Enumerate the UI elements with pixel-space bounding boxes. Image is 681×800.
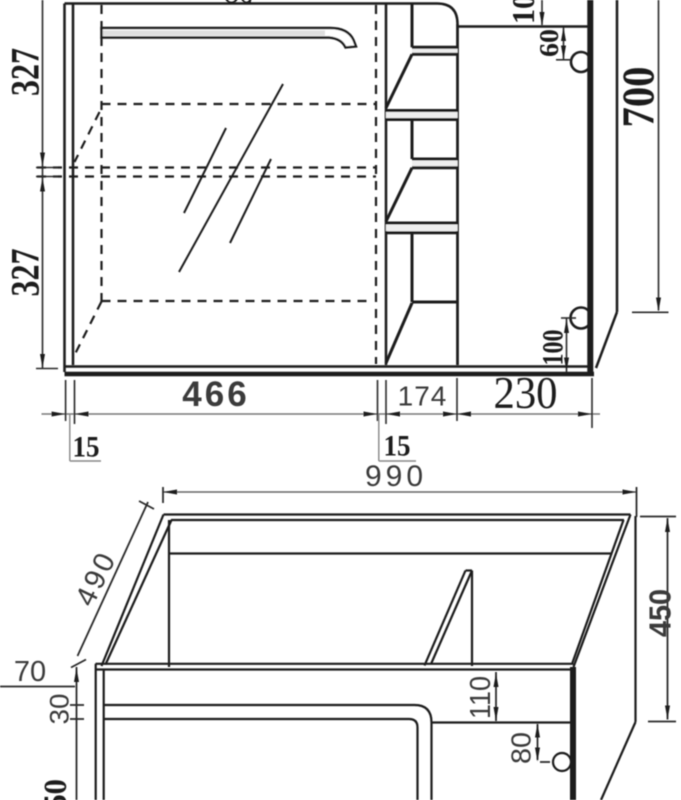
svg-text:70: 70 — [14, 656, 46, 688]
svg-text:60: 60 — [534, 29, 564, 57]
svg-text:450: 450 — [643, 589, 678, 637]
svg-text:990: 990 — [365, 460, 427, 493]
svg-text:327: 327 — [3, 48, 48, 96]
svg-text:150: 150 — [38, 779, 74, 800]
svg-text:100: 100 — [537, 330, 570, 366]
svg-text:110: 110 — [465, 676, 497, 719]
svg-text:15: 15 — [73, 431, 100, 464]
svg-text:15: 15 — [384, 430, 411, 463]
svg-text:30: 30 — [45, 694, 75, 725]
svg-text:174: 174 — [398, 381, 448, 412]
svg-text:10: 10 — [505, 0, 541, 24]
svg-text:327: 327 — [3, 249, 48, 297]
svg-text:230: 230 — [494, 368, 558, 418]
svg-text:80: 80 — [506, 732, 537, 764]
svg-text:700: 700 — [613, 67, 664, 128]
svg-text:466: 466 — [182, 375, 249, 414]
